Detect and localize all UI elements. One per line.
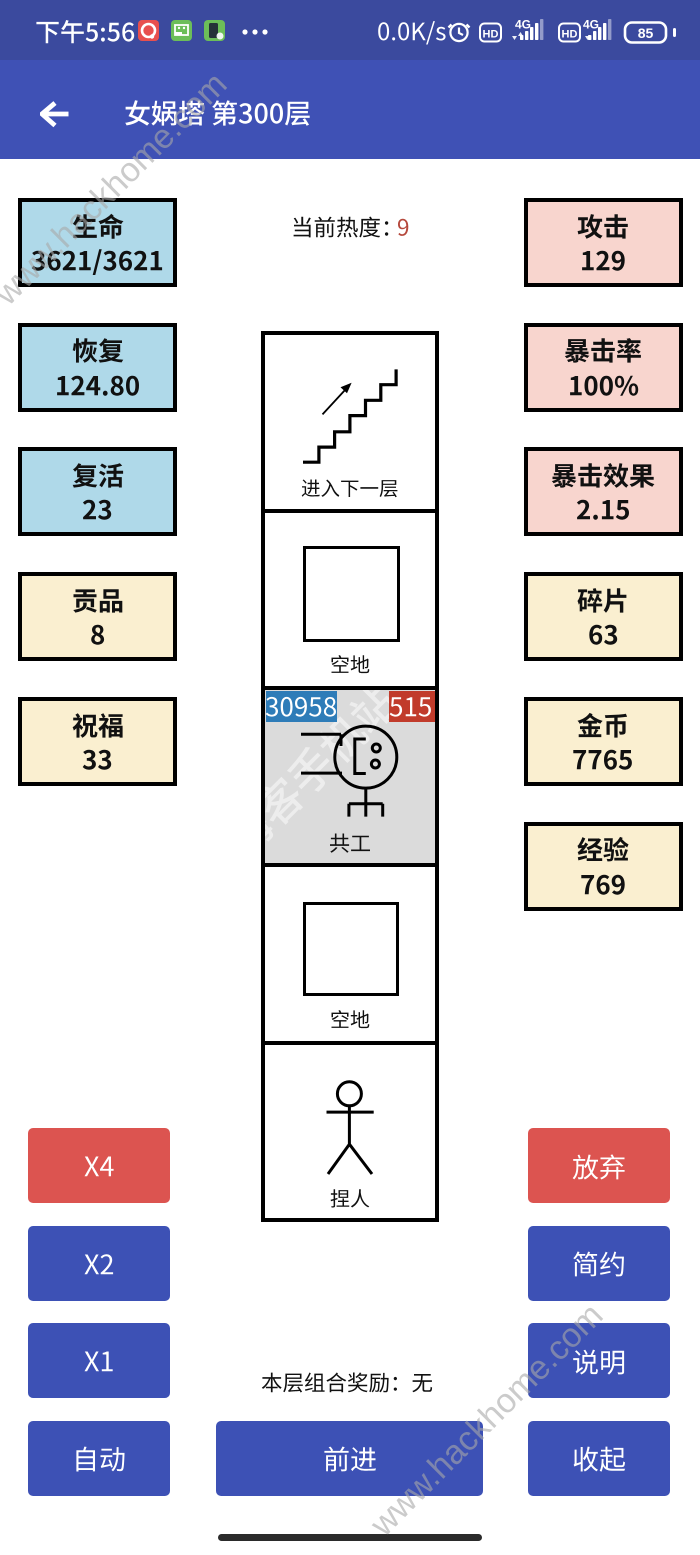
svg-text:4G: 4G <box>583 18 599 32</box>
svg-text:HD: HD <box>483 29 499 41</box>
svg-text:HD: HD <box>562 29 578 41</box>
svg-text:4G: 4G <box>515 18 531 32</box>
svg-text:85: 85 <box>638 25 654 41</box>
